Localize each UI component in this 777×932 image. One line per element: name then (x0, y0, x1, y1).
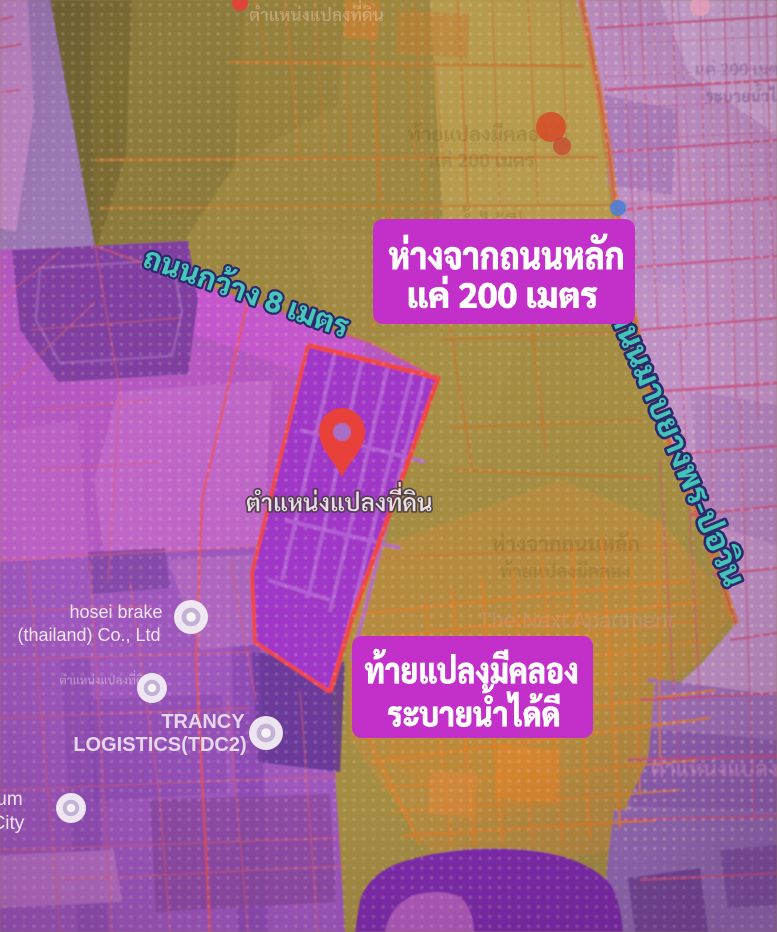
svg-text:hosei brake: hosei brake (69, 602, 162, 622)
svg-text:(thailand) Co., Ltd: (thailand) Co., Ltd (17, 625, 160, 645)
svg-text:inium: inium (0, 789, 23, 810)
svg-text:a City: a City (0, 813, 25, 834)
svg-text:LOGISTICS(TDC2): LOGISTICS(TDC2) (73, 734, 246, 756)
svg-text:TRANCY: TRANCY (161, 711, 245, 733)
svg-text:The Next Apartment: The Next Apartment (478, 608, 674, 633)
